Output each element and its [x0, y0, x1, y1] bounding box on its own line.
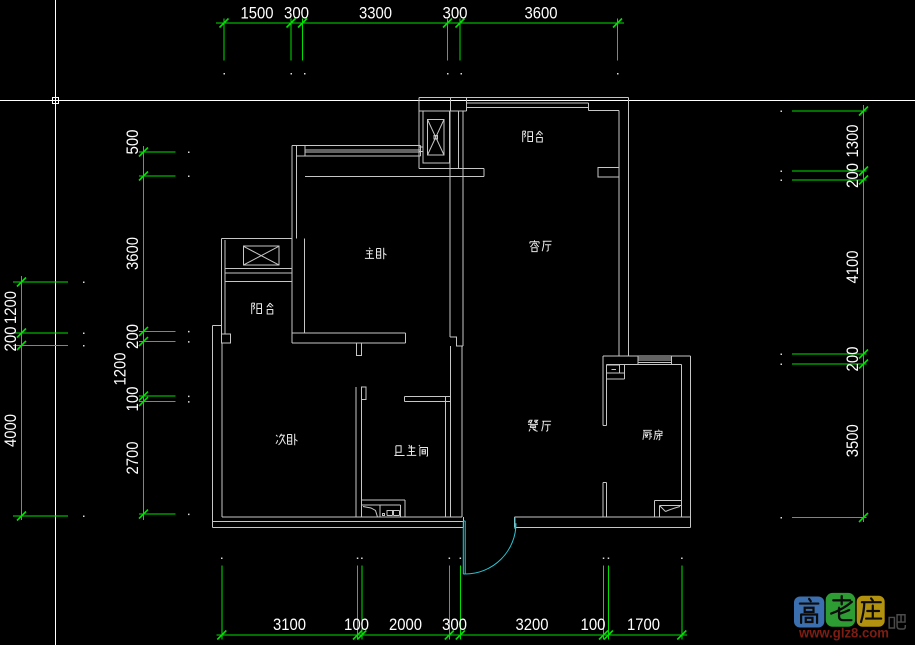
svg-text:3100: 3100: [273, 615, 306, 634]
svg-text:300: 300: [443, 4, 468, 23]
svg-text:300: 300: [284, 4, 309, 23]
svg-text:200: 200: [1, 327, 20, 352]
svg-text:1200: 1200: [1, 291, 20, 324]
svg-text:4000: 4000: [1, 414, 20, 447]
svg-text:200: 200: [843, 347, 862, 372]
svg-text:1700: 1700: [627, 615, 660, 634]
svg-text:3200: 3200: [516, 615, 549, 634]
svg-text:500: 500: [123, 130, 142, 155]
svg-text:100: 100: [344, 615, 369, 634]
svg-text:3300: 3300: [359, 4, 392, 23]
svg-text:4100: 4100: [843, 251, 862, 284]
svg-text:100: 100: [581, 615, 606, 634]
svg-text:3500: 3500: [843, 424, 862, 457]
svg-text:1200: 1200: [111, 353, 130, 386]
svg-text:200: 200: [123, 324, 142, 349]
svg-text:1500: 1500: [241, 4, 274, 23]
svg-text:200: 200: [843, 163, 862, 188]
svg-text:3600: 3600: [123, 237, 142, 270]
svg-text:1300: 1300: [843, 125, 862, 158]
svg-text:www.glz8.com: www.glz8.com: [798, 626, 889, 641]
svg-text:2000: 2000: [389, 615, 422, 634]
svg-text:100: 100: [123, 387, 142, 412]
svg-text:300: 300: [442, 615, 467, 634]
svg-text:3600: 3600: [525, 4, 558, 23]
svg-text:2700: 2700: [123, 442, 142, 475]
